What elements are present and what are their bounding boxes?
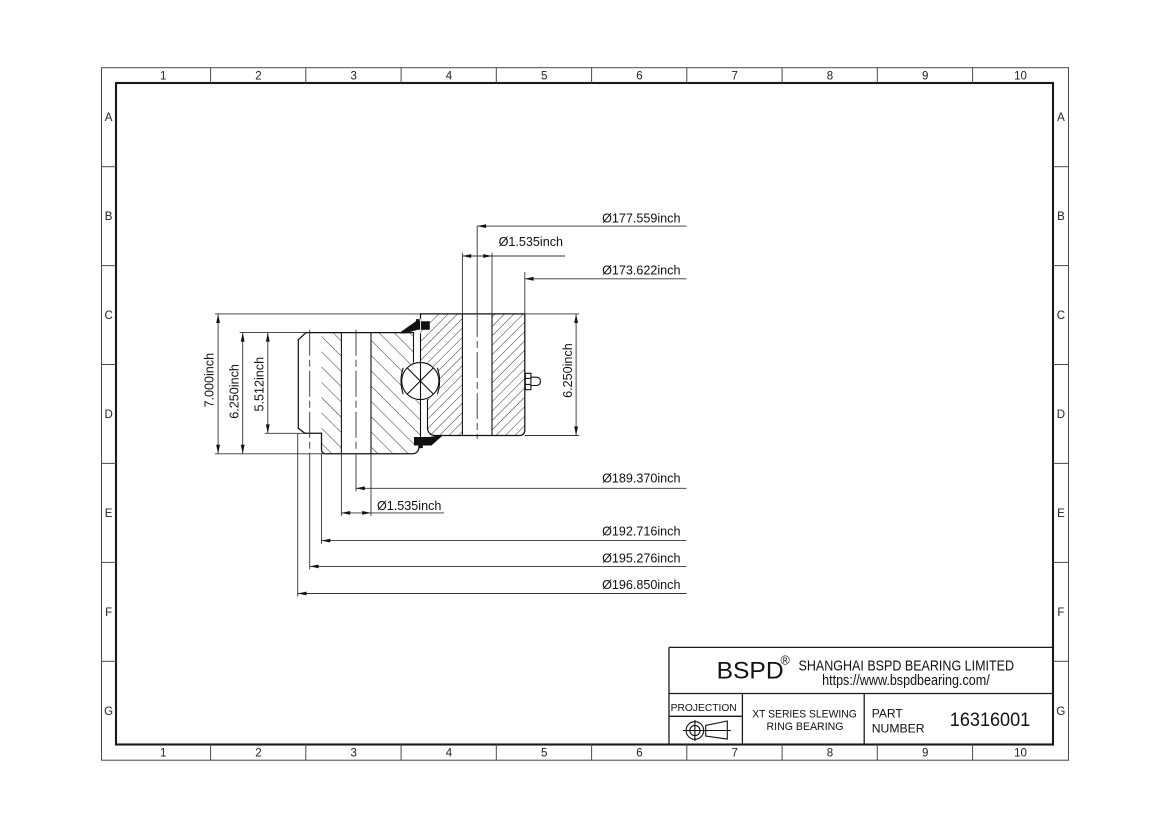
svg-text:BSPD: BSPD (717, 658, 784, 685)
svg-text:9: 9 (922, 70, 928, 82)
svg-text:2: 2 (255, 70, 261, 82)
svg-text:5: 5 (541, 748, 547, 760)
svg-text:Ø196.850inch: Ø196.850inch (602, 578, 680, 592)
svg-text:4: 4 (446, 748, 453, 760)
svg-text:Ø189.370inch: Ø189.370inch (602, 471, 680, 485)
svg-text:6.250inch: 6.250inch (228, 364, 242, 419)
svg-text:10: 10 (1014, 748, 1027, 760)
svg-text:F: F (1057, 607, 1064, 619)
svg-text:RING BEARING: RING BEARING (767, 721, 844, 733)
svg-text:2: 2 (255, 748, 261, 760)
svg-text:F: F (105, 607, 112, 619)
svg-text:6.250inch: 6.250inch (561, 343, 575, 398)
svg-text:®: ® (781, 654, 791, 668)
svg-text:7.000inch: 7.000inch (203, 353, 217, 408)
svg-text:D: D (104, 409, 112, 421)
svg-text:D: D (1057, 409, 1065, 421)
svg-text:B: B (105, 211, 113, 223)
svg-text:10: 10 (1014, 70, 1027, 82)
svg-text:A: A (1057, 112, 1065, 124)
svg-text:1: 1 (160, 70, 166, 82)
svg-text:7: 7 (731, 748, 737, 760)
svg-text:7: 7 (731, 70, 737, 82)
svg-text:PROJECTION: PROJECTION (671, 703, 737, 714)
svg-text:3: 3 (350, 70, 356, 82)
svg-text:A: A (105, 112, 113, 124)
svg-text:Ø177.559inch: Ø177.559inch (602, 212, 680, 226)
svg-text:5.512inch: 5.512inch (252, 357, 266, 412)
svg-text:G: G (104, 706, 113, 718)
svg-text:Ø195.276inch: Ø195.276inch (602, 551, 680, 565)
svg-text:9: 9 (922, 748, 928, 760)
svg-text:16316001: 16316001 (950, 710, 1030, 731)
svg-text:C: C (1057, 310, 1065, 322)
svg-text:Ø192.716inch: Ø192.716inch (602, 525, 680, 539)
svg-text:6: 6 (636, 748, 642, 760)
svg-text:B: B (1057, 211, 1065, 223)
svg-text:NUMBER: NUMBER (872, 722, 925, 736)
svg-text:8: 8 (827, 748, 833, 760)
svg-text:G: G (1056, 706, 1065, 718)
svg-text:https://www.bspdbearing.com/: https://www.bspdbearing.com/ (822, 672, 990, 689)
svg-text:Ø1.535inch: Ø1.535inch (377, 499, 441, 513)
svg-text:3: 3 (350, 748, 356, 760)
svg-text:4: 4 (446, 70, 453, 82)
svg-text:E: E (105, 508, 113, 520)
svg-text:8: 8 (827, 70, 833, 82)
svg-text:6: 6 (636, 70, 642, 82)
svg-text:E: E (1057, 508, 1065, 520)
svg-text:Ø173.622inch: Ø173.622inch (602, 263, 680, 277)
svg-text:XT SERIES SLEWING: XT SERIES SLEWING (752, 708, 857, 720)
svg-text:1: 1 (160, 748, 166, 760)
svg-text:Ø1.535inch: Ø1.535inch (499, 235, 563, 249)
svg-text:C: C (104, 310, 112, 322)
svg-text:5: 5 (541, 70, 547, 82)
svg-text:PART: PART (872, 706, 904, 720)
